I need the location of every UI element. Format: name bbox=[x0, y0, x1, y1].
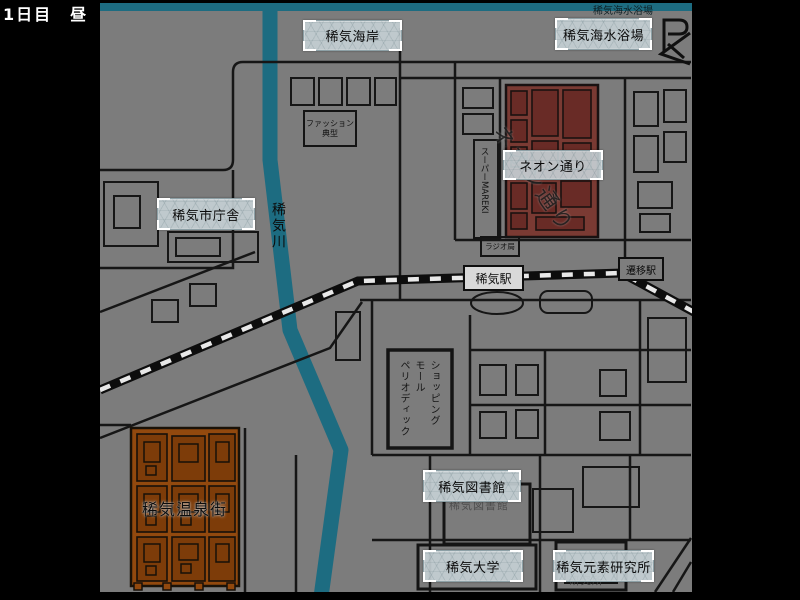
corner-bracket bbox=[423, 550, 436, 560]
location-button-library[interactable]: 稀気図書館 bbox=[423, 470, 521, 502]
corner-bracket bbox=[508, 470, 521, 480]
location-button-label: 稀気図書館 bbox=[438, 477, 506, 496]
corner-bracket bbox=[553, 550, 566, 560]
corner-bracket bbox=[423, 470, 436, 480]
corner-bracket bbox=[590, 150, 603, 160]
corner-bracket bbox=[641, 550, 654, 560]
corner-bracket bbox=[303, 41, 316, 51]
corner-bracket bbox=[510, 572, 523, 582]
location-button-university[interactable]: 稀気大学 bbox=[423, 550, 523, 582]
onsen-town-district bbox=[131, 428, 239, 590]
corner-bracket bbox=[389, 41, 402, 51]
corner-bracket bbox=[553, 572, 566, 582]
location-button-label: 稀気海岸 bbox=[325, 26, 379, 45]
sea-strip bbox=[100, 3, 692, 11]
location-button-neon-street[interactable]: ネオン通り bbox=[503, 150, 603, 180]
corner-bracket bbox=[641, 572, 654, 582]
corner-bracket bbox=[590, 170, 603, 180]
location-button-label: 稀気市庁舎 bbox=[172, 205, 240, 224]
corner-bracket bbox=[555, 40, 568, 50]
location-button-label: 稀気元素研究所 bbox=[556, 557, 651, 576]
location-button-label: ネオン通り bbox=[519, 156, 587, 175]
corner-bracket bbox=[303, 20, 316, 30]
location-button-label: 稀気海水浴場 bbox=[563, 25, 644, 44]
corner-bracket bbox=[555, 18, 568, 28]
corner-bracket bbox=[157, 198, 170, 208]
game-map-screen: 稀気海水浴場 ファッション 典型 スーパーMAREKI ネオン通り ラジオ局 稀… bbox=[0, 0, 800, 600]
corner-bracket bbox=[423, 572, 436, 582]
corner-bracket bbox=[639, 40, 652, 50]
location-button-city-hall[interactable]: 稀気市庁舎 bbox=[157, 198, 255, 230]
corner-bracket bbox=[639, 18, 652, 28]
corner-bracket bbox=[389, 20, 402, 30]
corner-bracket bbox=[423, 492, 436, 502]
corner-bracket bbox=[503, 150, 516, 160]
location-button-coast[interactable]: 稀気海岸 bbox=[303, 20, 402, 51]
location-button-label: 稀気大学 bbox=[446, 557, 500, 576]
corner-bracket bbox=[508, 492, 521, 502]
town-map bbox=[0, 0, 800, 600]
corner-bracket bbox=[242, 220, 255, 230]
corner-bracket bbox=[503, 170, 516, 180]
corner-bracket bbox=[510, 550, 523, 560]
corner-bracket bbox=[242, 198, 255, 208]
location-button-beach[interactable]: 稀気海水浴場 bbox=[555, 18, 652, 50]
location-button-research-lab[interactable]: 稀気元素研究所 bbox=[553, 550, 654, 582]
corner-bracket bbox=[157, 220, 170, 230]
